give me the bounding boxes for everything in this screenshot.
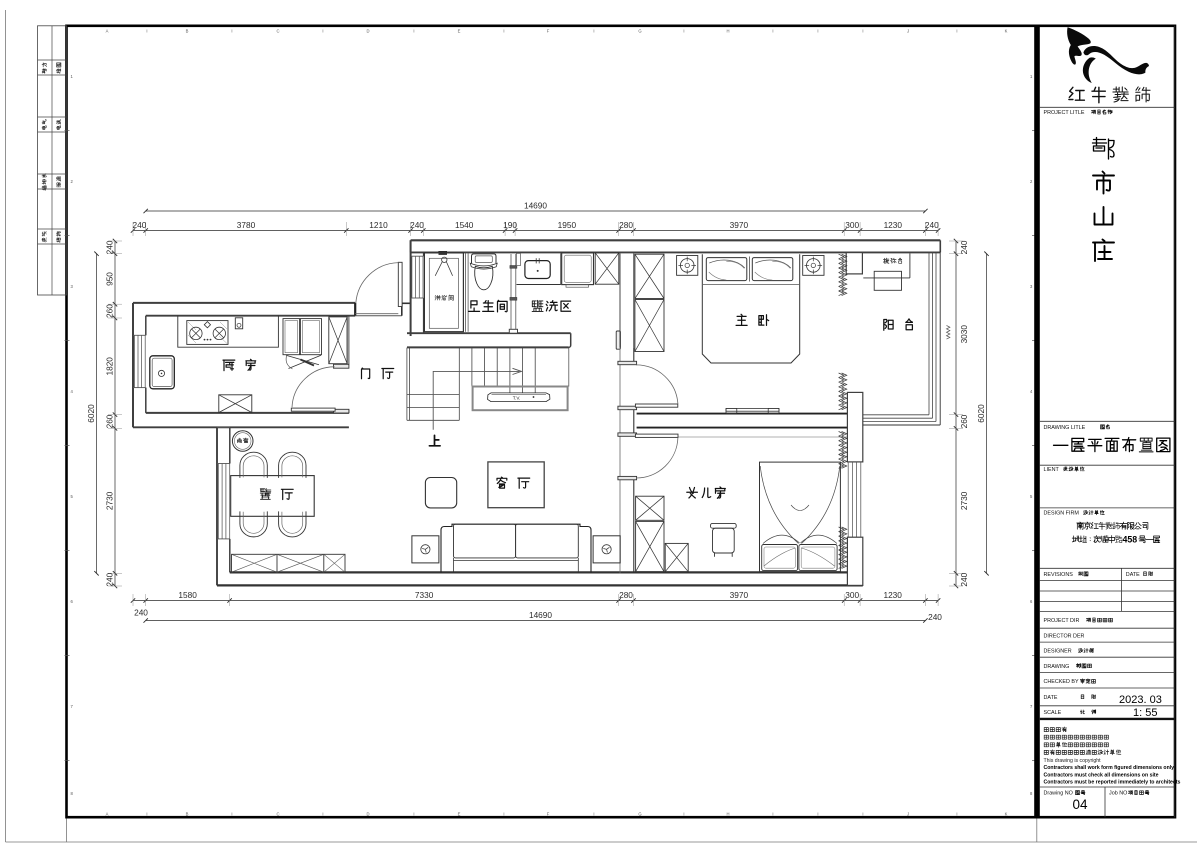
svg-text:A: A: [106, 29, 109, 34]
svg-text:D: D: [366, 812, 369, 817]
svg-text:240: 240: [959, 240, 969, 254]
svg-text:04: 04: [1072, 797, 1088, 812]
svg-text:I: I: [413, 812, 414, 817]
svg-text:1950: 1950: [558, 220, 577, 230]
svg-text:SCALE: SCALE: [1044, 710, 1062, 716]
svg-text:1230: 1230: [883, 590, 902, 600]
svg-text:1: 55: 1: 55: [1133, 707, 1157, 719]
svg-text:I: I: [862, 29, 863, 34]
svg-text:G: G: [638, 812, 641, 817]
svg-text:240: 240: [132, 220, 146, 230]
svg-text:3970: 3970: [730, 590, 749, 600]
svg-text:6020: 6020: [976, 404, 986, 423]
svg-text:I: I: [593, 29, 594, 34]
svg-text:DATE: DATE: [1044, 695, 1058, 701]
svg-text:2730: 2730: [959, 491, 969, 510]
svg-text:Contractors shall work form fi: Contractors shall work form figured dime…: [1044, 765, 1175, 771]
svg-text:I: I: [817, 29, 818, 34]
svg-text:T.V.: T.V.: [513, 395, 521, 400]
svg-text:DESIGN FIRM: DESIGN FIRM: [1044, 511, 1080, 517]
svg-text:I: I: [146, 29, 147, 34]
svg-text:I: I: [683, 29, 684, 34]
svg-text:950: 950: [105, 272, 115, 286]
svg-text:260: 260: [105, 304, 115, 318]
svg-text:3780: 3780: [237, 220, 256, 230]
svg-text:260: 260: [105, 414, 115, 428]
svg-text:I: I: [956, 29, 957, 34]
svg-text:DRAWING LITLE: DRAWING LITLE: [1044, 425, 1086, 431]
svg-text:I: I: [772, 812, 773, 817]
svg-text:240: 240: [928, 612, 942, 622]
svg-text:I: I: [231, 812, 232, 817]
svg-text:280: 280: [619, 220, 633, 230]
svg-text:LIENT: LIENT: [1044, 467, 1060, 473]
svg-text:300: 300: [845, 220, 859, 230]
svg-text:I: I: [413, 29, 414, 34]
svg-text:I: I: [322, 29, 323, 34]
svg-text:190: 190: [503, 220, 517, 230]
svg-text:I: I: [817, 812, 818, 817]
svg-text:458: 458: [1123, 535, 1138, 545]
svg-text:1230: 1230: [884, 220, 903, 230]
svg-text:B: B: [186, 812, 189, 817]
svg-text:K: K: [1005, 29, 1008, 34]
svg-text:PROJECT LITLE: PROJECT LITLE: [1044, 110, 1085, 116]
svg-text:H: H: [726, 812, 729, 817]
svg-text:Drawing NO: Drawing NO: [1044, 791, 1073, 797]
svg-text:DATE: DATE: [1126, 572, 1140, 578]
svg-text:F: F: [547, 29, 550, 34]
svg-text:CHECKED BY: CHECKED BY: [1044, 679, 1079, 685]
svg-text:I: I: [772, 29, 773, 34]
svg-text:I: I: [322, 812, 323, 817]
svg-text:300: 300: [845, 590, 859, 600]
svg-text:14690: 14690: [524, 201, 547, 211]
svg-text:D: D: [366, 29, 369, 34]
svg-text:REVISIONS: REVISIONS: [1044, 572, 1074, 578]
svg-text:DIRECTOR DER: DIRECTOR DER: [1044, 633, 1085, 639]
svg-text:I: I: [862, 812, 863, 817]
svg-text:1540: 1540: [455, 220, 474, 230]
svg-text:I: I: [503, 29, 504, 34]
svg-text:I: I: [231, 29, 232, 34]
svg-text:This drawing is copyright: This drawing is copyright: [1044, 758, 1102, 764]
svg-text:1820: 1820: [105, 357, 115, 376]
svg-text:260: 260: [959, 414, 969, 428]
svg-text:C: C: [276, 29, 279, 34]
svg-text:7330: 7330: [415, 590, 434, 600]
svg-text:A: A: [106, 812, 109, 817]
svg-text:PROJECT DIR: PROJECT DIR: [1044, 618, 1080, 624]
svg-text:1210: 1210: [369, 220, 388, 230]
svg-text:6020: 6020: [86, 404, 96, 423]
svg-text:14690: 14690: [529, 610, 552, 620]
svg-text:240: 240: [410, 220, 424, 230]
svg-text:Job NO: Job NO: [1109, 791, 1127, 797]
svg-text:F: F: [547, 812, 550, 817]
svg-text:3970: 3970: [730, 220, 749, 230]
svg-text:2730: 2730: [105, 491, 115, 510]
svg-text:I: I: [956, 812, 957, 817]
svg-text:Contractors must be reported i: Contractors must be reported immediately…: [1044, 780, 1181, 786]
svg-text:J: J: [907, 29, 909, 34]
svg-text:Contractors must check all dim: Contractors must check all dimensions on…: [1044, 772, 1159, 778]
svg-text:280: 280: [619, 590, 633, 600]
svg-text:K: K: [1005, 812, 1008, 817]
svg-text:I: I: [683, 812, 684, 817]
svg-text:B: B: [186, 29, 189, 34]
svg-text:3030: 3030: [959, 325, 969, 344]
svg-text:1580: 1580: [178, 590, 197, 600]
svg-text:240: 240: [959, 572, 969, 586]
svg-text:G: G: [638, 29, 641, 34]
svg-text:I: I: [593, 812, 594, 817]
svg-text:DESIGNER: DESIGNER: [1044, 649, 1072, 655]
svg-text:240: 240: [105, 240, 115, 254]
svg-text:240: 240: [134, 607, 148, 617]
svg-text:2023. 03: 2023. 03: [1119, 694, 1162, 706]
svg-text:240: 240: [105, 572, 115, 586]
svg-text:H: H: [726, 29, 729, 34]
svg-text:I: I: [146, 812, 147, 817]
svg-text:E: E: [458, 812, 461, 817]
svg-text:J: J: [907, 812, 909, 817]
svg-text:I: I: [503, 812, 504, 817]
svg-text:C: C: [276, 812, 279, 817]
svg-text:240: 240: [925, 220, 939, 230]
svg-text:E: E: [458, 29, 461, 34]
svg-text:DRAWING: DRAWING: [1044, 664, 1070, 670]
